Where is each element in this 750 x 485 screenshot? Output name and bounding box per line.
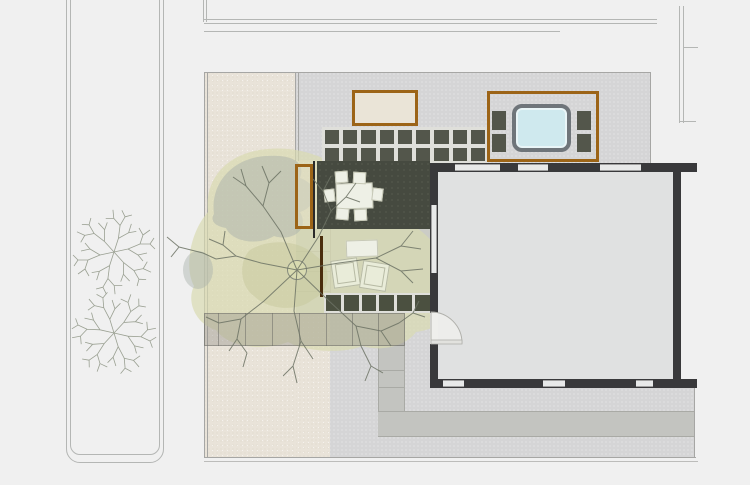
street-line-right-v2: [683, 6, 684, 123]
yard-border-left-outer: [204, 72, 205, 458]
paver-cell: [325, 148, 339, 162]
yard-border-left-inner: [207, 72, 208, 458]
paver-cell: [380, 148, 394, 162]
paver-cell: [398, 148, 412, 162]
paver-cell: [453, 130, 467, 144]
concrete-path-horizontal: [378, 411, 695, 437]
site-plan-canvas: [0, 0, 750, 485]
window-left-wall: [431, 205, 437, 273]
paver-cell: [325, 130, 339, 144]
window-bottom-2: [543, 380, 565, 387]
walkway-joint-5: [326, 313, 327, 346]
window-bottom-3: [636, 380, 653, 387]
dining-chair-5: [323, 188, 335, 202]
window-top-1: [455, 164, 500, 171]
paver-cell: [362, 295, 377, 311]
paver-cell: [379, 295, 394, 311]
building-interior: [430, 163, 681, 388]
paver-cell: [577, 134, 591, 153]
paver-cell: [416, 148, 430, 162]
dining-chair-3: [336, 207, 350, 220]
window-bottom-1: [443, 380, 464, 387]
walkway-joint-6: [352, 313, 353, 346]
street-line-top-h2: [204, 23, 657, 24]
lounge-chair-2-cushion: [364, 265, 386, 288]
path-joint-3: [379, 387, 404, 388]
street-line-right-end: [679, 121, 696, 122]
paver-cell: [434, 130, 448, 144]
paver-cell: [416, 130, 430, 144]
street-line-right-v1: [679, 6, 680, 123]
wood-bench: [295, 164, 313, 229]
lounge-chair-1: [330, 257, 361, 288]
street-line-right-tick: [683, 47, 698, 48]
terrace-joint-2: [296, 271, 330, 272]
walkway-joint-1: [218, 313, 219, 346]
yard-border-right-lower: [694, 388, 695, 458]
paver-cell: [343, 148, 357, 162]
paver-walkway-band: [204, 313, 405, 346]
paver-cell: [415, 295, 430, 311]
paver-cell: [453, 148, 467, 162]
paver-cell: [326, 295, 341, 311]
lounge-chair-2: [359, 260, 390, 292]
paver-cell: [344, 295, 359, 311]
street-line-top-h3: [204, 31, 560, 32]
terrace-joint-3: [296, 291, 330, 292]
dining-table: [336, 182, 374, 209]
building-wall-left: [430, 163, 438, 388]
dining-chair-2: [353, 172, 367, 185]
sand-area-left: [205, 73, 296, 457]
platform-pavers-right: [577, 111, 591, 152]
top-paver-grid: [322, 127, 488, 164]
paver-cell: [492, 111, 506, 130]
dining-chair-4: [354, 209, 368, 222]
paver-cell: [434, 148, 448, 162]
hot-tub: [512, 104, 571, 152]
path-joint-2: [379, 370, 404, 371]
paver-cell: [492, 134, 506, 153]
paver-cell: [471, 148, 485, 162]
paver-cell: [380, 130, 394, 144]
privacy-screen: [320, 236, 323, 297]
paver-cell: [361, 148, 375, 162]
platform-pavers-left: [492, 111, 506, 152]
yard-border-top: [204, 72, 650, 73]
building-wall-right: [673, 163, 681, 388]
window-top-2: [518, 164, 548, 171]
yard-border-bottom: [204, 457, 696, 458]
deck-edge-line: [313, 161, 315, 238]
paver-cell: [361, 130, 375, 144]
dining-chair-6: [371, 187, 384, 201]
paver-cell: [398, 130, 412, 144]
paver-cell: [471, 130, 485, 144]
sand-gravel-divider-1: [295, 72, 296, 161]
dining-chair-1: [335, 171, 349, 184]
street-median-inner: [70, 0, 160, 455]
walkway-joint-3: [272, 313, 273, 346]
paver-cell: [577, 111, 591, 130]
walkway-joint-4: [299, 313, 300, 346]
lounge-paver-row: [324, 293, 432, 313]
walkway-joint-2: [245, 313, 246, 346]
lounge-chair-1-cushion: [335, 262, 357, 284]
walkway-joint-7: [378, 313, 379, 346]
street-line-top-h1: [204, 19, 657, 20]
sand-gravel-divider-2: [298, 72, 299, 161]
terrace-joint-1: [296, 251, 330, 252]
side-table: [346, 239, 379, 257]
yard-border-right-upper: [650, 72, 651, 163]
paver-cell: [343, 130, 357, 144]
wood-planter: [352, 90, 418, 126]
door-opening: [430, 313, 438, 344]
window-top-3: [600, 164, 641, 171]
paver-cell: [397, 295, 412, 311]
yard-outer-bottom-line: [204, 461, 698, 462]
